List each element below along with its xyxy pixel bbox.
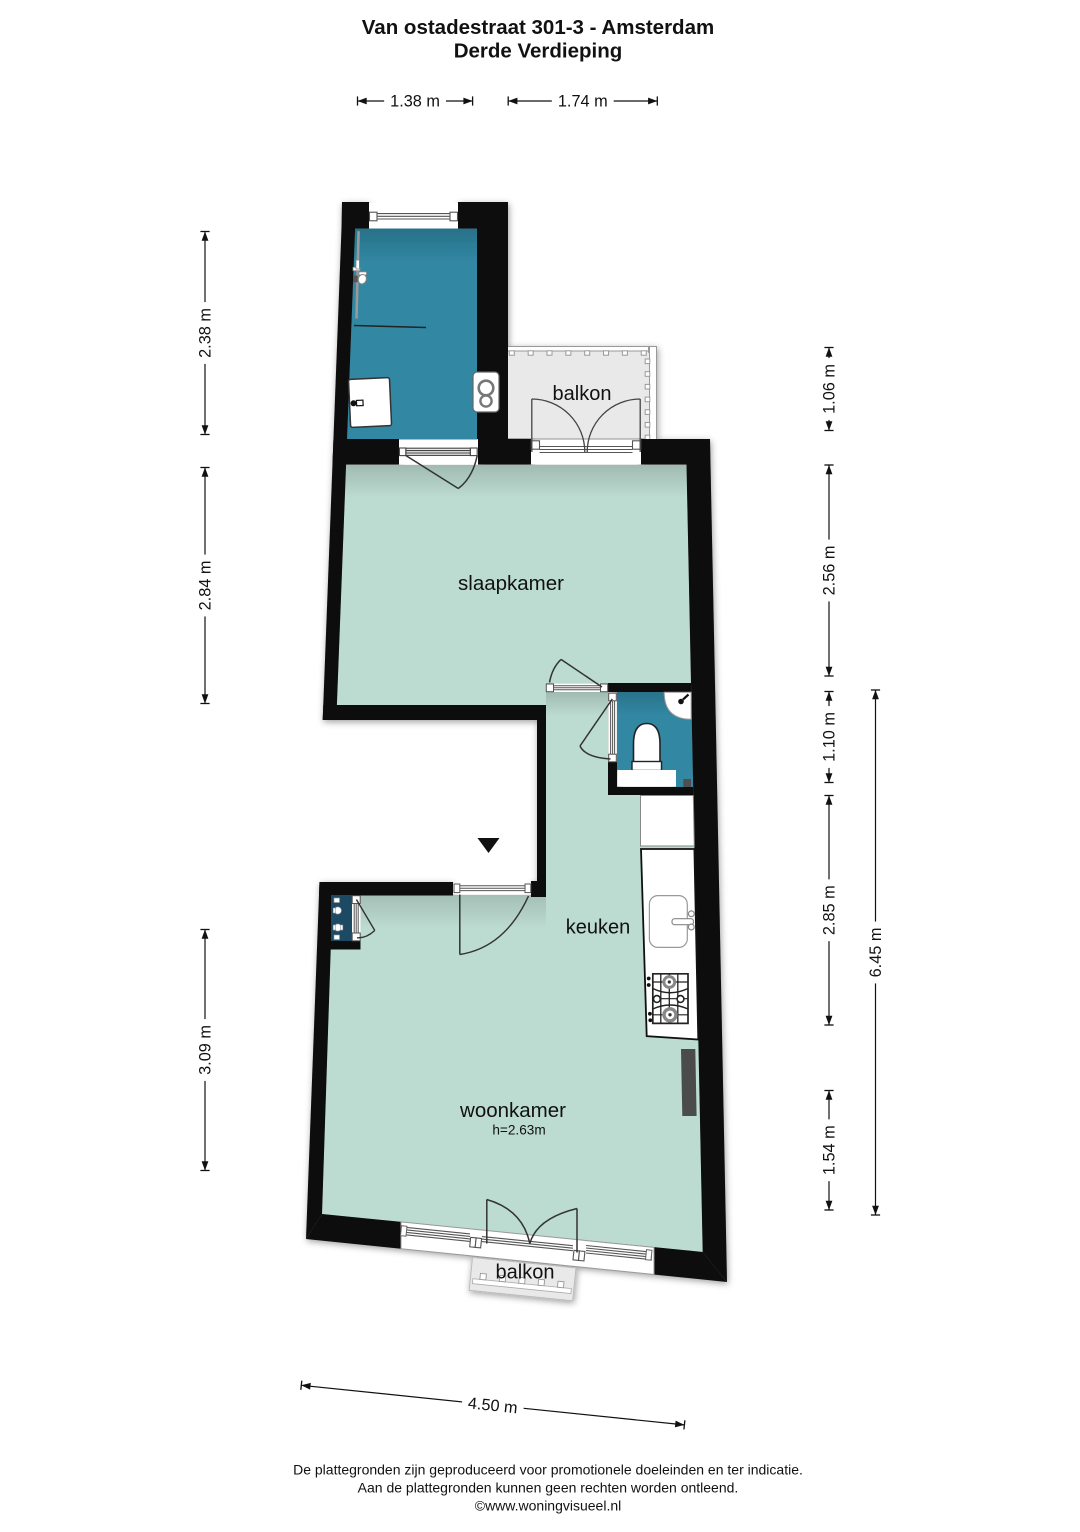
svg-text:Aan de plattegronden kunnen ge: Aan de plattegronden kunnen geen rechten…: [358, 1480, 739, 1496]
svg-text:1.74 m: 1.74 m: [558, 93, 608, 111]
svg-text:2.85 m: 2.85 m: [821, 885, 839, 935]
svg-text:balkon: balkon: [496, 1262, 555, 1284]
svg-text:1.38 m: 1.38 m: [390, 93, 440, 111]
svg-text:Van ostadestraat 301-3 - Amste: Van ostadestraat 301-3 - Amsterdam: [362, 16, 714, 39]
svg-text:6.45 m: 6.45 m: [867, 928, 885, 978]
svg-text:2.84 m: 2.84 m: [197, 561, 215, 611]
svg-text:keuken: keuken: [566, 917, 631, 939]
svg-text:balkon: balkon: [553, 383, 612, 405]
svg-text:2.38 m: 2.38 m: [197, 308, 215, 358]
svg-text:Derde Verdieping: Derde Verdieping: [454, 40, 623, 63]
svg-text:3.09 m: 3.09 m: [197, 1025, 215, 1075]
svg-text:1.06 m: 1.06 m: [821, 364, 839, 414]
svg-text:De plattegronden zijn geproduc: De plattegronden zijn geproduceerd voor …: [293, 1462, 803, 1478]
svg-text:slaapkamer: slaapkamer: [458, 572, 564, 595]
svg-text:h=2.63m: h=2.63m: [492, 1122, 545, 1137]
svg-text:1.54 m: 1.54 m: [821, 1125, 839, 1175]
svg-text:©www.woningvisueel.nl: ©www.woningvisueel.nl: [475, 1498, 622, 1514]
svg-text:1.10 m: 1.10 m: [821, 712, 839, 762]
svg-text:woonkamer: woonkamer: [459, 1099, 566, 1122]
svg-text:2.56 m: 2.56 m: [821, 546, 839, 596]
